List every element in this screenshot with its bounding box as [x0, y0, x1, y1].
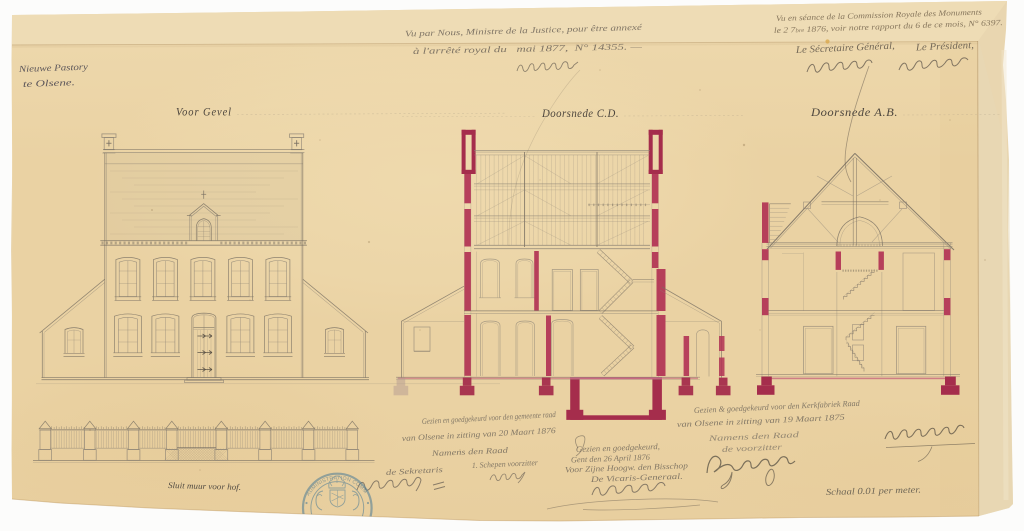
svg-text:Voor Gevel: Voor Gevel	[176, 107, 232, 119]
svg-text:te Olsene.: te Olsene.	[23, 77, 75, 89]
svg-text:Doorsnede C.D.: Doorsnede C.D.	[541, 108, 619, 120]
svg-text:Sluit muur voor hof.: Sluit muur voor hof.	[168, 480, 241, 492]
